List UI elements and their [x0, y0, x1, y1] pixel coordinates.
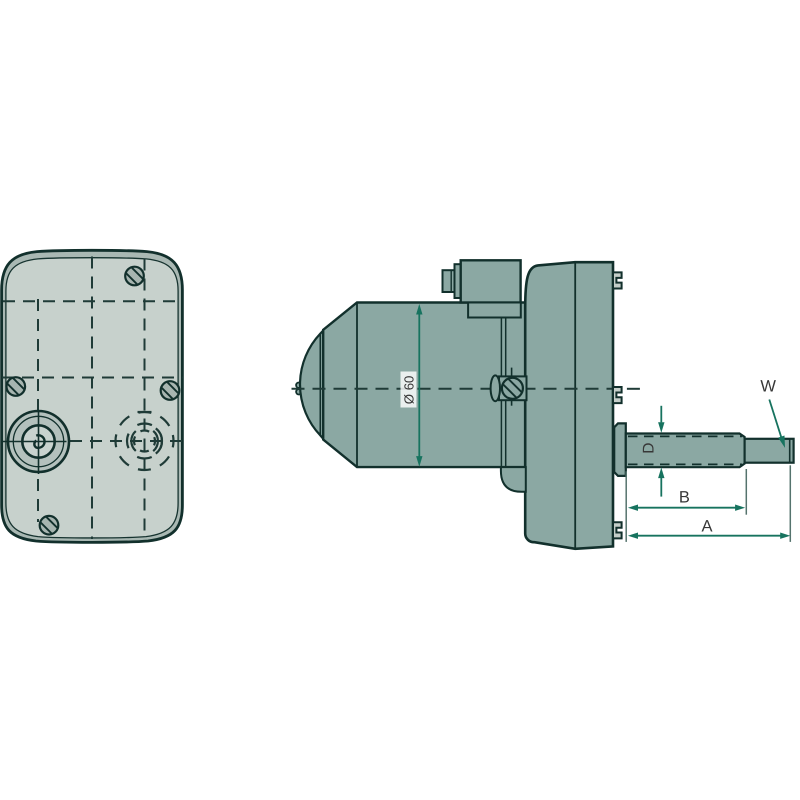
svg-text:A: A	[701, 517, 712, 535]
svg-text:W: W	[760, 378, 776, 396]
svg-text:Ø 60: Ø 60	[402, 376, 417, 405]
svg-text:B: B	[679, 488, 690, 506]
svg-text:D: D	[640, 443, 657, 454]
